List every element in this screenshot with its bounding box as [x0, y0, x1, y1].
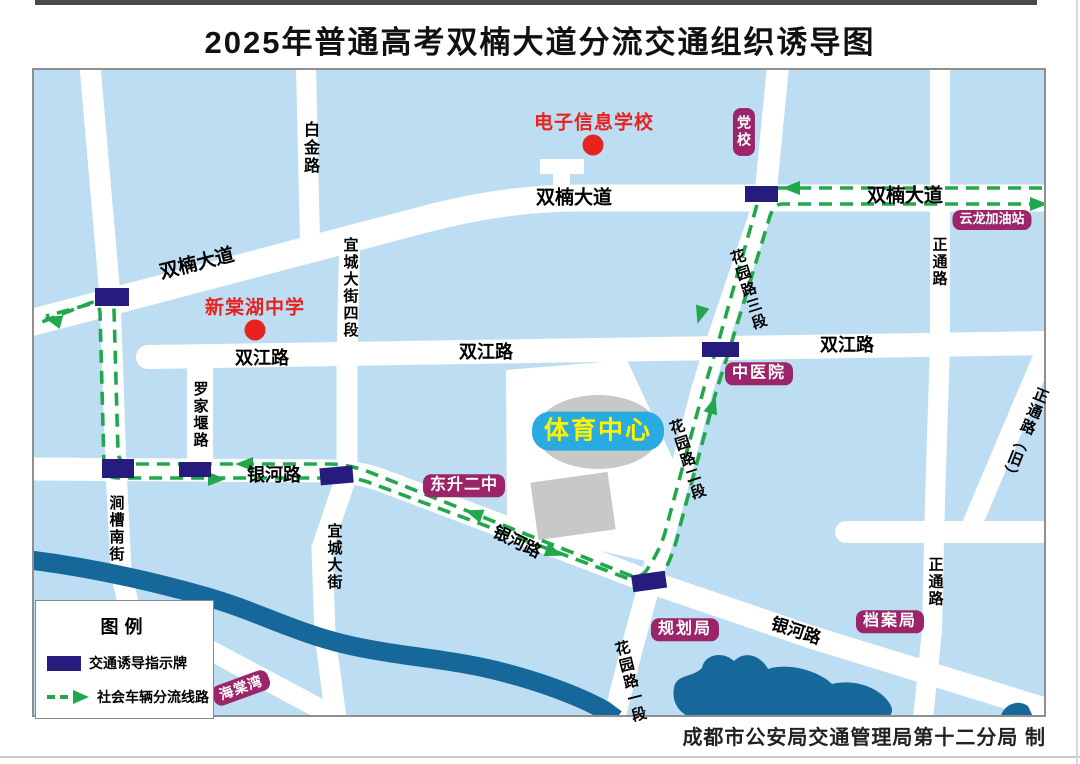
legend-item-route: 社会车辆分流线路: [47, 687, 213, 707]
page-edge-bottom: [0, 756, 1080, 758]
road-label-yinhe-w: 银河路: [247, 466, 301, 484]
road-label-jiancao: 涧槽南街: [109, 495, 124, 563]
legend-title: 图例: [36, 613, 213, 639]
road-label-shuangnan-c: 双楠大道: [536, 189, 612, 208]
road-label-luojiayan: 罗家堰路: [193, 381, 208, 449]
road-zhengtong-road-old: [968, 350, 1044, 534]
route-arrow-icon: [691, 305, 710, 326]
school-label-xintanghu: 新棠湖中学: [205, 293, 305, 320]
legend-item-label: 社会车辆分流线路: [97, 687, 209, 707]
poi-badge-tcm-hospital: 中医院: [725, 362, 793, 385]
guidance-sign-icon: [702, 342, 739, 357]
road-label-shuangjiang-e: 双江路: [820, 336, 874, 354]
road-label-shuangjiang-w: 双江路: [235, 349, 289, 367]
guidance-sign-icon: [47, 656, 81, 671]
poi-badge-party-school: 党校: [733, 108, 755, 156]
exam-site-dot-icon: [245, 320, 266, 341]
guidance-sign-icon: [102, 459, 134, 478]
legend-item-sign: 交通诱导指示牌: [47, 653, 213, 673]
guidance-sign-icon: [745, 186, 778, 202]
guidance-sign-icon: [319, 466, 353, 486]
legend: 图例 交通诱导指示牌 社会车辆分流线路: [35, 600, 214, 719]
exam-site-dot-icon: [583, 135, 604, 156]
page: 2025年普通高考双楠大道分流交通组织诱导图: [0, 0, 1080, 764]
poi-badge-archives-bureau: 档案局: [856, 610, 924, 633]
road-label-shuangjiang-c: 双江路: [459, 343, 513, 361]
guidance-sign-icon: [95, 288, 129, 306]
poi-badge-yunlong-gas-station: 云龙加油站: [952, 210, 1031, 230]
road-label-zhengtong-n: 正通路: [932, 237, 947, 288]
road-zhengtong-road: [923, 70, 940, 715]
stadium-building: [530, 472, 615, 540]
poi-badge-sports-center: 体育中心: [532, 412, 664, 451]
school-label-electronic-info: 电子信息学校: [534, 108, 654, 135]
road-label-zhengtong-s: 正通路: [928, 557, 943, 608]
traffic-map: 白金路 双楠大道 双楠大道 双楠大道 宜城大街四段 双江路 双江路 双江路 罗家…: [32, 68, 1046, 717]
legend-item-label: 交通诱导指示牌: [89, 653, 187, 673]
poi-badge-planning-bureau: 规划局: [651, 618, 719, 641]
road-label-baijin: 白金路: [301, 121, 317, 175]
page-title: 2025年普通高考双楠大道分流交通组织诱导图: [0, 17, 1080, 62]
page-edge-right: [1076, 0, 1078, 764]
road-label-shuangnan-e: 双楠大道: [867, 187, 943, 206]
guidance-sign-icon: [179, 462, 211, 477]
page-edge-top: [35, 0, 1037, 5]
map-credit: 成都市公安局交通管理局第十二分局 制: [682, 721, 1046, 750]
road-label-yicheng: 宜城大街: [327, 523, 342, 591]
route-arrow-icon: [47, 689, 89, 705]
road-label-yicheng-4: 宜城大街四段: [343, 237, 358, 339]
poi-badge-dongsheng-no2-school: 东升二中: [423, 474, 505, 497]
